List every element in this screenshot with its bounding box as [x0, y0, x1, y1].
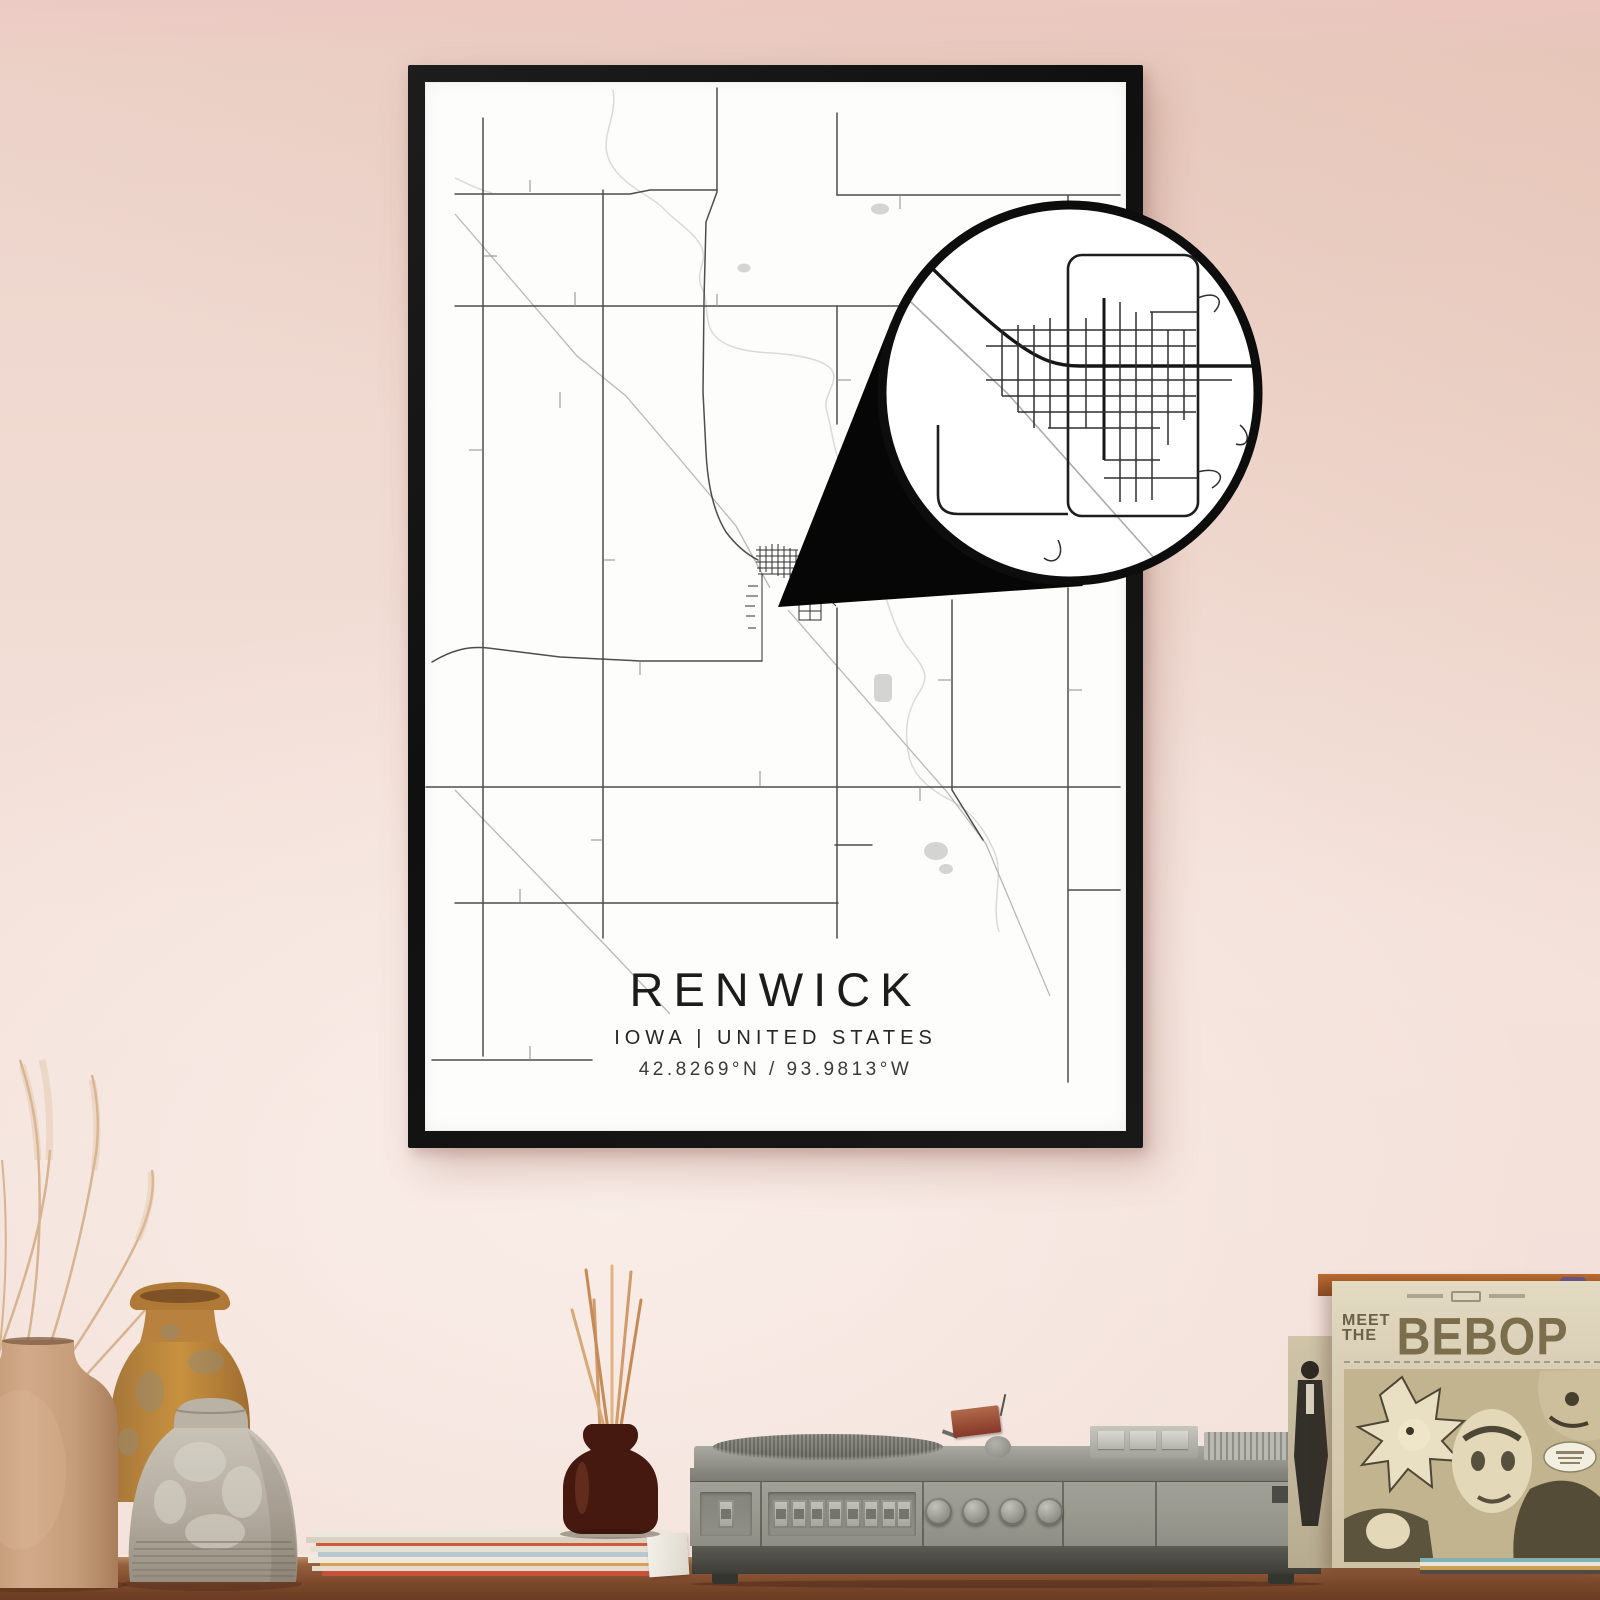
album-art-collage: [1344, 1369, 1600, 1562]
album-word-the: THE: [1342, 1328, 1390, 1343]
preset-button: [827, 1500, 843, 1528]
tuning-knob: [1036, 1498, 1063, 1525]
record-player: [690, 1398, 1323, 1588]
treble-knob: [999, 1498, 1026, 1525]
player-base: [692, 1546, 1321, 1574]
control-deck: [1090, 1426, 1198, 1458]
player-front-face: [690, 1468, 1323, 1546]
album-word-meet: MEET: [1342, 1313, 1390, 1328]
preset-panel: [768, 1492, 916, 1536]
poster-subtitle: IOWA | UNITED STATES: [425, 1027, 1126, 1050]
preset-button: [896, 1500, 912, 1528]
player-foot: [1268, 1574, 1294, 1584]
turntable-platter: [713, 1434, 943, 1460]
power-button: [718, 1500, 734, 1528]
preset-button: [773, 1500, 789, 1528]
bebop-album-sleeve: MEET THE BEBOP: [1332, 1281, 1600, 1568]
bottle-highlight: [575, 1462, 589, 1514]
sleeve-fine-print: [1332, 1289, 1600, 1303]
panel-groove: [760, 1482, 762, 1546]
album-title-small: MEET THE: [1342, 1313, 1390, 1343]
speed-knob: [985, 1436, 1011, 1458]
album-title-main: BEBOP: [1396, 1305, 1568, 1367]
deck-key: [1162, 1431, 1188, 1449]
incense-sticks: [572, 1266, 641, 1432]
wall-gradient-band: [0, 0, 1600, 58]
face-shape: [1452, 1409, 1532, 1513]
preset-button: [863, 1500, 879, 1528]
preset-button: [845, 1500, 861, 1528]
switch-square: [1272, 1486, 1289, 1503]
back-record-sleeve: [1288, 1336, 1336, 1568]
poster-title: RENWICK: [425, 962, 1126, 1017]
tan-vase: [0, 1337, 118, 1588]
front-top-strip: [690, 1468, 1323, 1482]
back-sleeve-figure: [1288, 1336, 1336, 1568]
preset-button: [809, 1500, 825, 1528]
bottle-shadow: [560, 1529, 660, 1539]
tonearm-cartridge: [951, 1405, 1002, 1438]
album-artwork: [1344, 1369, 1600, 1562]
still-life-group: [0, 1000, 320, 1600]
magnifier-circle: [740, 180, 1280, 630]
reed-diffuser: [540, 1240, 690, 1540]
sleeve-divider: [1344, 1361, 1600, 1363]
power-panel: [700, 1492, 752, 1536]
panel-groove: [922, 1482, 924, 1546]
volume-knob: [925, 1498, 952, 1525]
player-foot: [712, 1574, 738, 1584]
room-scene: RENWICK IOWA | UNITED STATES 42.8269°N /…: [0, 0, 1600, 1600]
player-shadow: [690, 1580, 1323, 1588]
preset-button: [791, 1500, 807, 1528]
poster-coordinates: 42.8269°N / 93.9813°W: [425, 1059, 1126, 1081]
preset-button: [881, 1500, 897, 1528]
bass-knob: [962, 1498, 989, 1525]
stereo-mark: [1451, 1291, 1481, 1302]
deck-key: [1098, 1431, 1124, 1449]
tonearm-pin: [1000, 1394, 1007, 1416]
panel-groove: [1155, 1482, 1157, 1546]
deck-key: [1130, 1431, 1156, 1449]
record-edges-stack: [1420, 1558, 1600, 1576]
poster-title-block: RENWICK IOWA | UNITED STATES 42.8269°N /…: [425, 962, 1126, 1081]
album-title-row: MEET THE BEBOP: [1342, 1305, 1569, 1360]
